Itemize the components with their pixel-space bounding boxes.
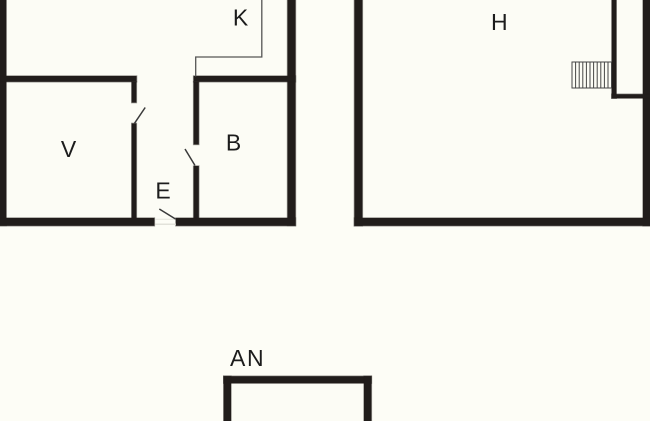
svg-text:K: K: [233, 5, 249, 31]
svg-text:E: E: [155, 177, 170, 203]
svg-text:H: H: [491, 9, 508, 35]
svg-text:B: B: [226, 129, 241, 155]
svg-text:AN: AN: [230, 345, 265, 371]
svg-text:V: V: [61, 136, 77, 162]
